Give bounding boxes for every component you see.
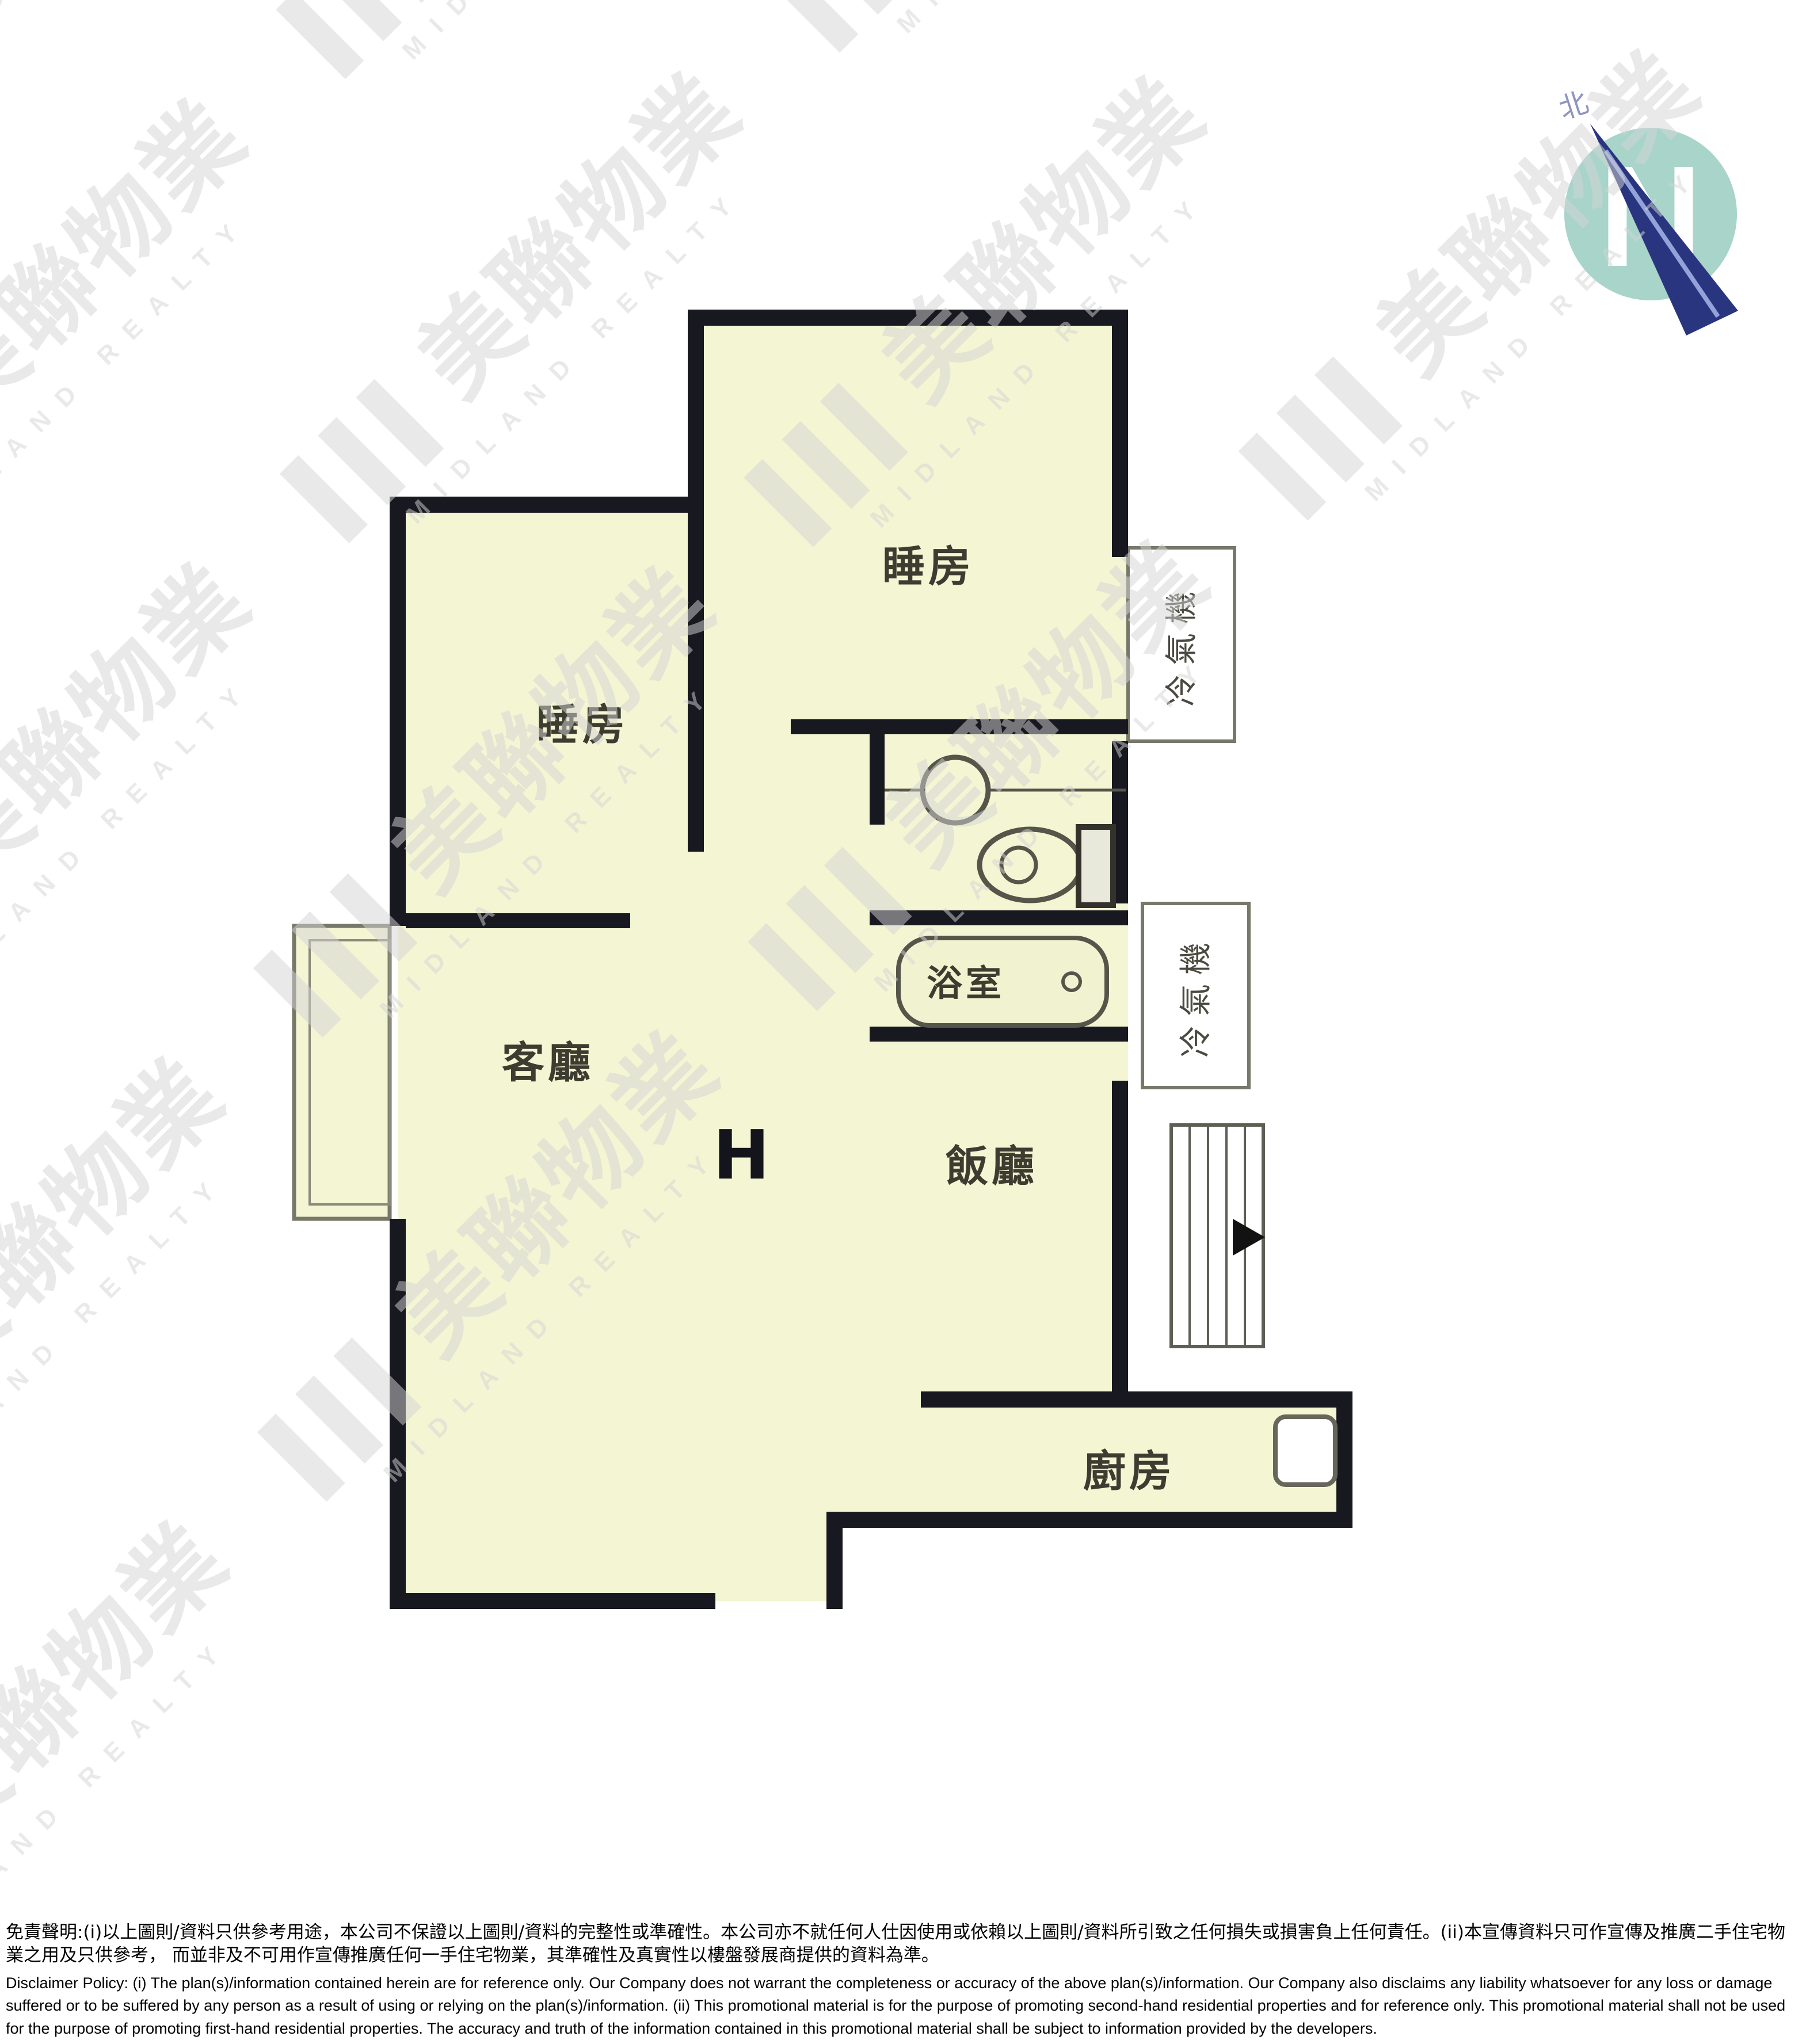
bay-window xyxy=(294,926,390,1219)
unit-letter-h: H xyxy=(713,1115,770,1195)
dining-room-label: 飯廳 xyxy=(946,1142,1038,1191)
wall-segment xyxy=(390,1593,715,1609)
disclaimer-block: 免責聲明:(i)以上圖則/資料只供參考用途，本公司不保證以上圖則/資料的完整性或… xyxy=(6,1921,1803,2041)
floor-plan-drawing: 睡房 睡房 客廳 飯廳 浴室 廚房 H 冷氣機 冷氣機 N 北 xyxy=(0,0,1806,2044)
wall-segment xyxy=(688,310,704,513)
bathroom-label: 浴室 xyxy=(927,962,1005,1004)
disclaimer-english: Disclaimer Policy: (i) The plan(s)/infor… xyxy=(6,1972,1803,2041)
bathtub-drain xyxy=(1063,973,1080,990)
wall-segment xyxy=(921,1391,1352,1408)
wall-segment xyxy=(870,719,885,825)
wall-segment xyxy=(870,1027,1128,1042)
wall-segment xyxy=(1336,1391,1352,1528)
disclaimer-chinese: 免責聲明:(i)以上圖則/資料只供參考用途，本公司不保證以上圖則/資料的完整性或… xyxy=(6,1921,1803,1967)
entrance-arrow xyxy=(1233,1219,1265,1256)
wall-segment xyxy=(826,1528,843,1609)
living-room-label: 客廳 xyxy=(502,1038,594,1088)
ac-platform-label-mid: 冷氣機 xyxy=(1178,933,1215,1058)
wall-segment xyxy=(1112,310,1128,557)
wall-segment xyxy=(791,719,1128,734)
wall-segment xyxy=(688,497,704,852)
ac-platform-label-top: 冷氣機 xyxy=(1163,582,1201,707)
wash-basin xyxy=(923,757,988,823)
wall-segment xyxy=(826,1512,1352,1528)
toilet-bowl xyxy=(980,829,1081,901)
floor-plan-page: 睡房 睡房 客廳 飯廳 浴室 廚房 H 冷氣機 冷氣機 N 北 ▍▍▍美聯物業M… xyxy=(0,0,1806,2044)
compass-north-char: 北 xyxy=(1554,85,1592,126)
wall-segment xyxy=(1112,1081,1128,1408)
bedroom-top-label: 睡房 xyxy=(882,542,974,592)
wall-segment xyxy=(406,913,630,928)
toilet-cistern xyxy=(1079,827,1113,905)
bedroom-left-label: 睡房 xyxy=(536,700,628,750)
kitchen-label: 廚房 xyxy=(1083,1447,1175,1496)
wall-segment xyxy=(870,910,1128,925)
wall-segment xyxy=(390,497,406,926)
wall-segment xyxy=(390,1219,406,1609)
kitchen-sink xyxy=(1275,1417,1335,1485)
north-compass: N 北 xyxy=(1554,85,1738,335)
wall-segment xyxy=(390,497,703,513)
wall-segment xyxy=(703,310,1128,326)
